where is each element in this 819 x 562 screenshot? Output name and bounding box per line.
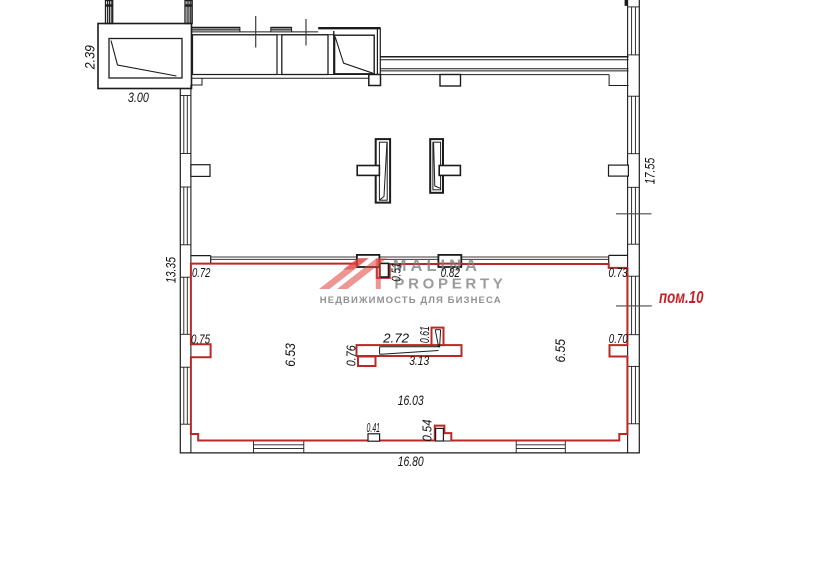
svg-text:пом.10: пом.10 (659, 287, 704, 307)
svg-text:13.35: 13.35 (164, 257, 179, 283)
svg-text:MALINA: MALINA (393, 257, 481, 275)
svg-text:6.53: 6.53 (283, 343, 298, 367)
svg-text:0.70: 0.70 (609, 331, 629, 346)
svg-text:2.72: 2.72 (382, 331, 410, 346)
svg-text:0.54: 0.54 (419, 420, 434, 442)
svg-text:0.82: 0.82 (441, 265, 461, 280)
svg-text:0.73: 0.73 (609, 265, 629, 280)
svg-text:0.72: 0.72 (192, 265, 211, 280)
svg-text:2.39: 2.39 (83, 45, 98, 70)
svg-text:0.76: 0.76 (343, 345, 358, 367)
svg-text:0.75: 0.75 (191, 331, 211, 346)
svg-text:0.51: 0.51 (388, 263, 403, 282)
svg-text:НЕДВИЖИМОСТЬ ДЛЯ БИЗНЕСА: НЕДВИЖИМОСТЬ ДЛЯ БИЗНЕСА (320, 295, 502, 306)
svg-text:16.80: 16.80 (398, 454, 424, 469)
svg-text:16.03: 16.03 (398, 393, 424, 408)
svg-text:0.41: 0.41 (367, 420, 381, 435)
svg-text:3.13: 3.13 (409, 353, 430, 368)
svg-text:6.55: 6.55 (553, 339, 568, 363)
svg-text:17.55: 17.55 (643, 157, 658, 184)
svg-text:0.61: 0.61 (417, 326, 432, 343)
svg-text:3.00: 3.00 (128, 90, 149, 105)
